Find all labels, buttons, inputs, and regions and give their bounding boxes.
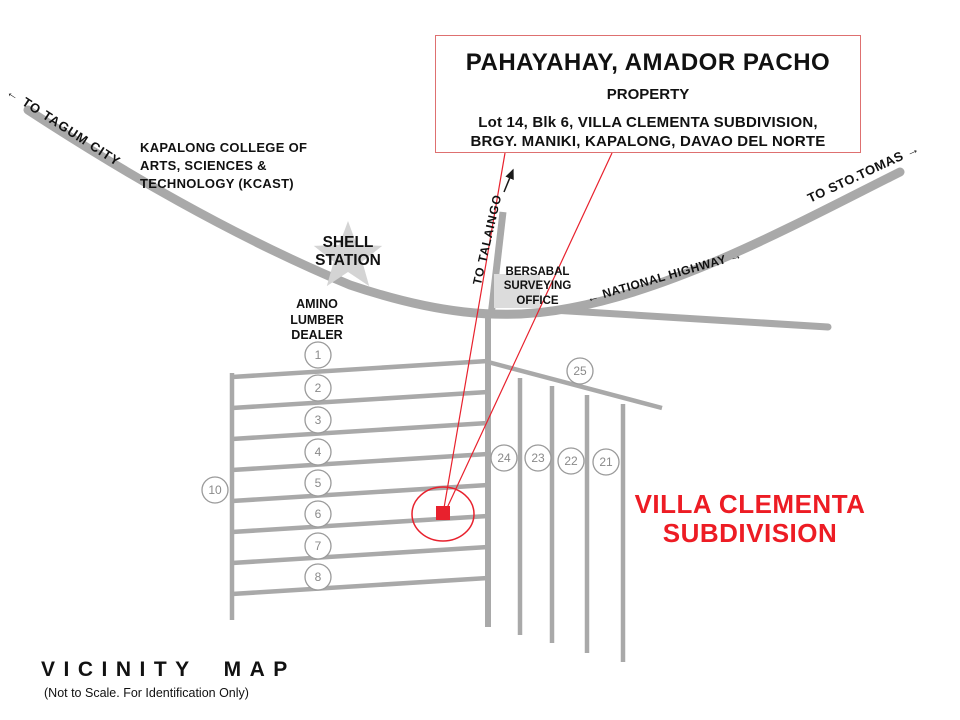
svg-text:2: 2 [315,381,322,395]
svg-text:21: 21 [599,455,613,469]
lot-marker: 1 [305,342,331,368]
map-title: VICINITY MAP [41,658,296,682]
lot-marker: 25 [567,358,593,384]
property-title-box: PAHAYAHAY, AMADOR PACHO PROPERTY Lot 14,… [435,35,861,153]
svg-text:22: 22 [564,454,578,468]
talaingo-direction-arrow-icon [504,170,513,192]
property-address-line: BRGY. MANIKI, KAPALONG, DAVAO DEL NORTE [436,133,860,150]
svg-text:4: 4 [315,445,322,459]
lot-marker: 3 [305,407,331,433]
map-subtitle: (Not to Scale. For Identification Only) [44,686,249,700]
lot-marker: 24 [491,445,517,471]
svg-text:24: 24 [497,451,511,465]
lot-marker: 5 [305,470,331,496]
property-owner: PAHAYAHAY, AMADOR PACHO [436,49,860,77]
label-amino-lumber-dealer: AMINO LUMBER DEALER [277,297,357,344]
lot-marker: 7 [305,533,331,559]
lot-marker: 22 [558,448,584,474]
svg-text:8: 8 [315,570,322,584]
property-square-marker [436,506,450,520]
label-kapalong-college: KAPALONG COLLEGE OF ARTS, SCIENCES & TEC… [140,139,307,194]
svg-text:23: 23 [531,451,545,465]
svg-text:7: 7 [315,539,322,553]
lot-marker: 8 [305,564,331,590]
lot-marker: 21 [593,449,619,475]
lot-marker: 4 [305,439,331,465]
road-east-branch [552,310,828,327]
svg-text:10: 10 [208,483,222,497]
subdivision-grid-west [232,361,488,620]
svg-text:5: 5 [315,476,322,490]
svg-text:1: 1 [315,348,322,362]
lot-marker: 23 [525,445,551,471]
label-villa-clementa-subdivision: VILLA CLEMENTA SUBDIVISION [625,490,875,548]
lot-marker: 2 [305,375,331,401]
property-word: PROPERTY [436,86,860,103]
lot-marker: 10 [202,477,228,503]
svg-text:3: 3 [315,413,322,427]
label-shell-station: SHELL STATION [298,234,398,270]
label-bersabal-surveying-office: BERSABAL SURVEYING OFFICE [485,265,590,308]
lot-marker: 6 [305,501,331,527]
svg-text:25: 25 [573,364,587,378]
vicinity-map-page: 1 2 3 4 5 6 7 8 10 25 24 23 22 21 KAPALO… [0,0,960,720]
property-lot-line: Lot 14, Blk 6, VILLA CLEMENTA SUBDIVISIO… [436,114,860,131]
svg-text:6: 6 [315,507,322,521]
